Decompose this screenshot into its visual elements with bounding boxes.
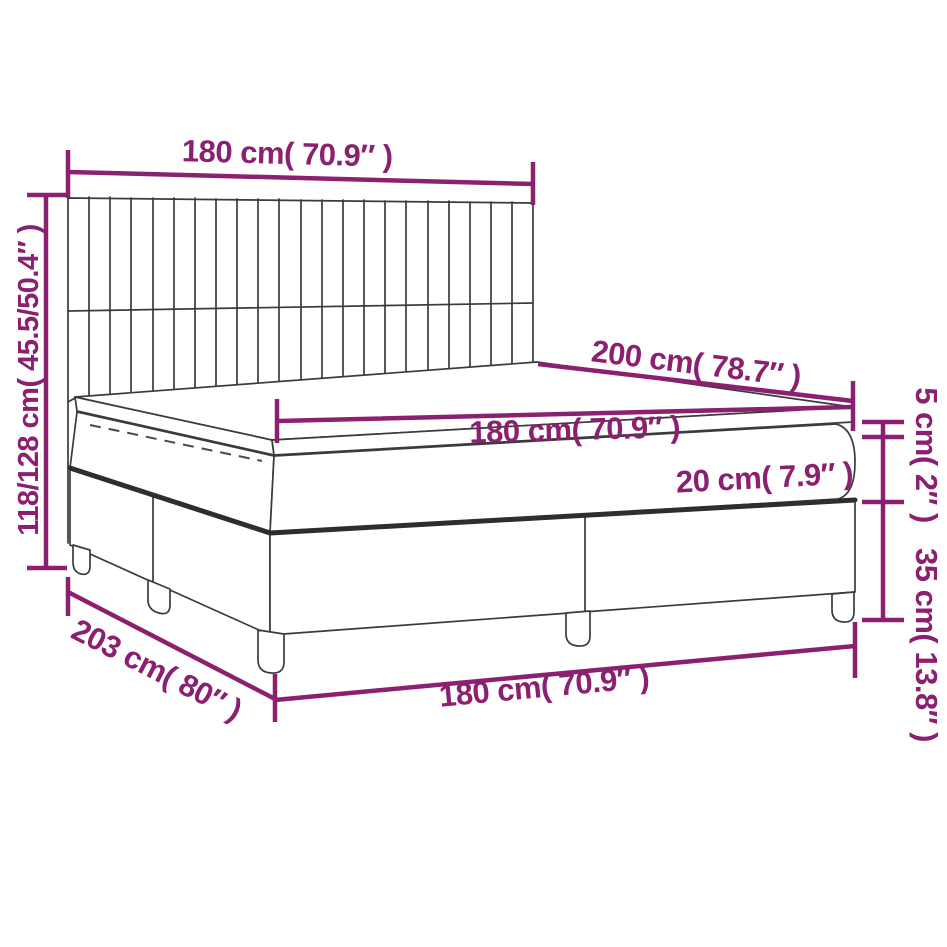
dim-base-height-label: 35 cm( 13.8″ ) xyxy=(909,548,944,742)
dim-mattress-width-label: 180 cm( 70.9″ ) xyxy=(469,409,681,450)
dim-topper-thickness-label: 5 cm( 2″ ) xyxy=(909,387,944,523)
bed-line-art xyxy=(68,197,855,673)
dim-headboard-width: 180 cm( 70.9″ ) xyxy=(68,133,533,205)
headboard-tufting-lines xyxy=(89,197,512,396)
dim-right-column-line xyxy=(862,422,904,620)
dim-overall-height: 118/128 cm( 45.5/50.4″ ) xyxy=(13,195,67,568)
bed-leg-foot-middle xyxy=(566,611,590,646)
dim-base-width-label: 180 cm( 70.9″ ) xyxy=(438,659,651,713)
bed-leg-back-left xyxy=(73,545,90,574)
bed-leg-foot-right xyxy=(832,592,854,622)
dim-headboard-width-label: 180 cm( 70.9″ ) xyxy=(182,133,394,174)
bed-dimension-diagram: 180 cm( 70.9″ ) 118/128 cm( 45.5/50.4″ )… xyxy=(0,0,947,947)
bed-leg-front-corner xyxy=(258,630,284,673)
dim-right-column: 5 cm( 2″ ) 35 cm( 13.8″ ) xyxy=(862,387,944,742)
dim-overall-height-label: 118/128 cm( 45.5/50.4″ ) xyxy=(13,224,45,535)
dim-base-width: 180 cm( 70.9″ ) xyxy=(275,622,855,722)
